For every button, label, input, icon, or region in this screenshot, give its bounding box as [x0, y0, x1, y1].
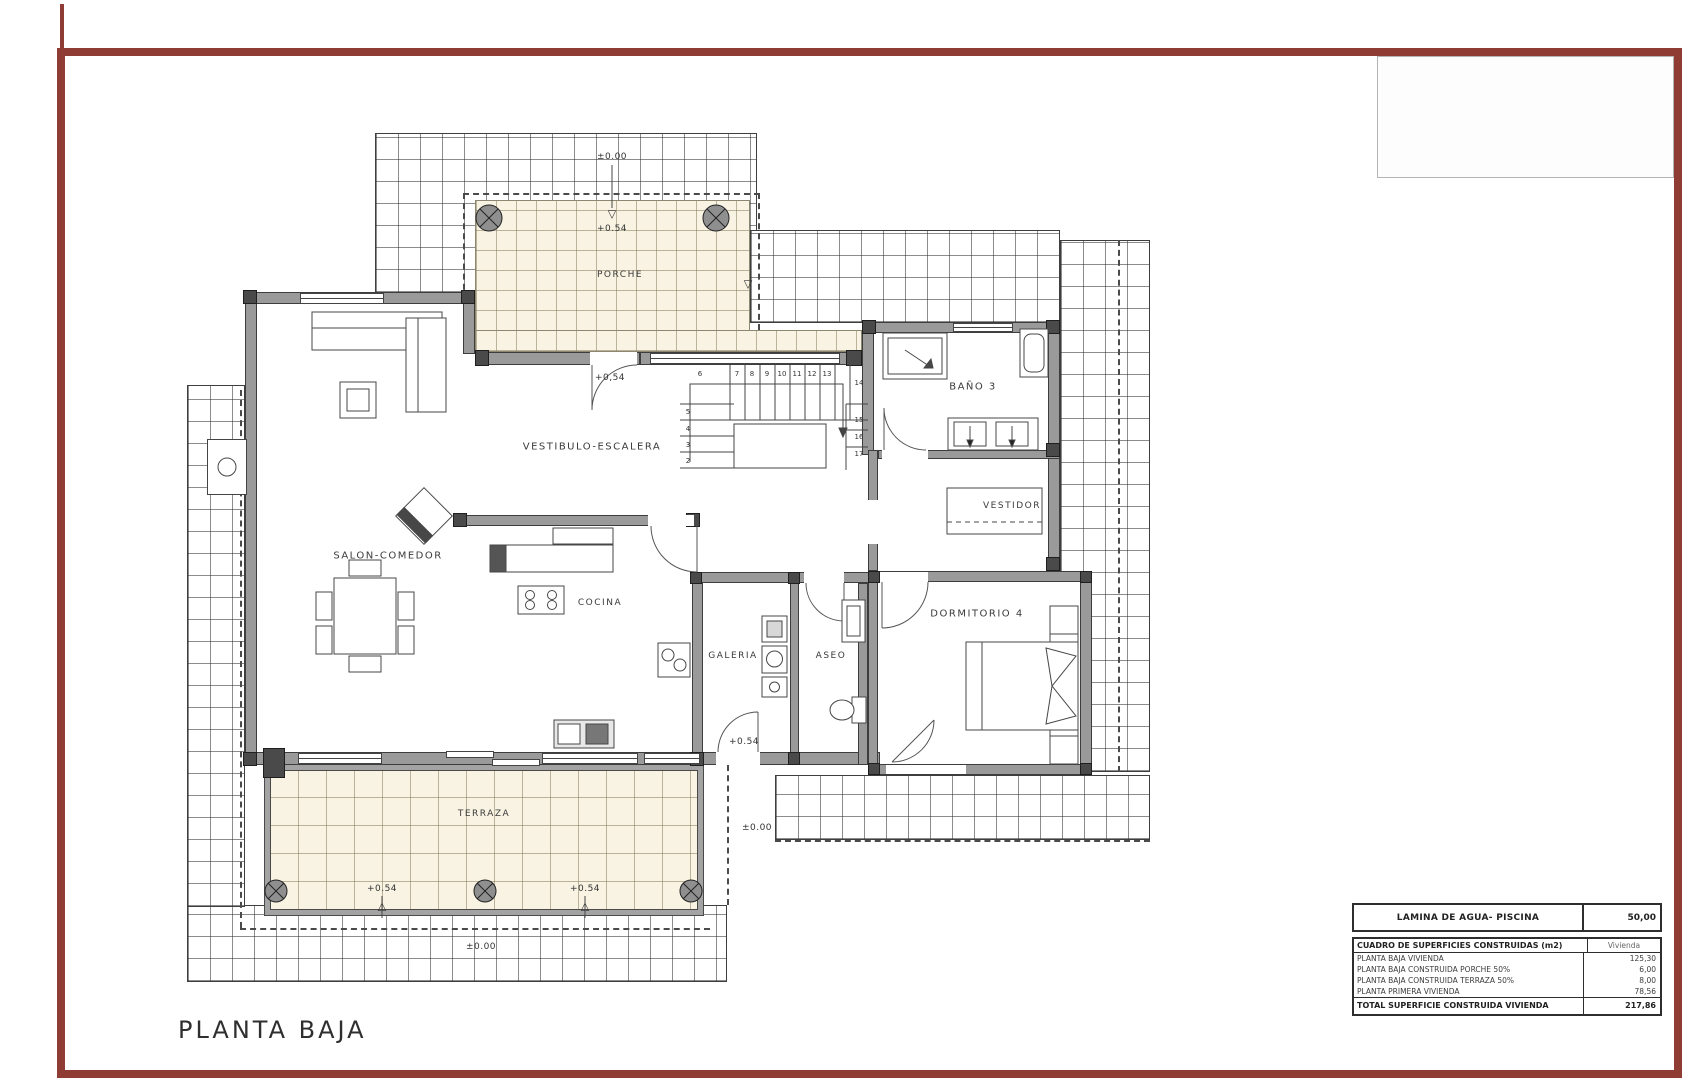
pier-block: [1080, 571, 1092, 583]
step-number: 15: [855, 416, 864, 424]
frame-corner-tick: [60, 4, 64, 50]
door-opening-entrance: [590, 352, 637, 365]
table-cell-value: 8,00: [1583, 975, 1660, 986]
pier-block: [1046, 320, 1060, 334]
step-number: 7: [735, 370, 739, 378]
drawing-title: PLANTA BAJA: [178, 1016, 367, 1044]
level-mark-galeria: +0.54: [729, 737, 759, 747]
room-mid-area: [475, 352, 880, 765]
paving-bottom-right: [775, 775, 1150, 840]
step-number: 9: [765, 370, 769, 378]
step-number: 4: [686, 425, 690, 433]
porch-floor-strip: [475, 330, 862, 352]
wall-dorm-right: [1080, 571, 1092, 775]
title-block-box: [1377, 56, 1674, 178]
step-number: 5: [686, 408, 690, 416]
window-salon-bottom: [298, 753, 382, 764]
wall-galeria-left: [692, 583, 703, 765]
door-opening-dorm-south: [886, 765, 966, 774]
window-cocina-bottom: [542, 753, 638, 764]
level-mark-porch: +0.54: [597, 224, 627, 234]
pier-block: [1080, 763, 1092, 775]
room-label-aseo: ASEO: [816, 651, 847, 661]
window-salon-top: [300, 293, 384, 304]
wall-bano3-left: [862, 322, 874, 455]
pier-block: [243, 290, 257, 304]
drawing-sheet: 2 3 4 5 6 7 8 9 10 11 12 13 14 15 16 17 …: [0, 0, 1700, 1080]
table-total-label: TOTAL SUPERFICIE CONSTRUIDA VIVIENDA: [1354, 998, 1583, 1014]
terrace-floor: [265, 765, 703, 915]
pier-block: [690, 572, 702, 584]
window-bano3: [953, 323, 1013, 332]
table-row: PLANTA BAJA VIVIENDA 125,30: [1354, 953, 1660, 964]
step-number: 3: [686, 441, 690, 449]
pool-area-label: LAMINA DE AGUA- PISCINA: [1354, 913, 1582, 923]
pier-block: [868, 571, 880, 583]
dashed-mid-boundary: [727, 765, 729, 905]
room-label-terraza: TERRAZA: [458, 809, 510, 819]
table-cell-value: 78,56: [1583, 986, 1660, 997]
table-header-label: CUADRO DE SUPERFICIES CONSTRUIDAS (m2): [1354, 939, 1587, 952]
level-mark-bottom: ±0.00: [466, 942, 496, 952]
pier-block: [1046, 557, 1060, 571]
step-number: 11: [793, 370, 802, 378]
pier-block: [453, 513, 467, 527]
room-label-vestibulo: VESTIBULO-ESCALERA: [523, 442, 661, 453]
surfaces-table: LAMINA DE AGUA- PISCINA 50,00 CUADRO DE …: [1352, 903, 1662, 1016]
pier-block: [846, 350, 862, 366]
door-opening-galeria: [716, 752, 760, 765]
sliding-door-leaf: [446, 751, 494, 758]
pool-area-row: LAMINA DE AGUA- PISCINA 50,00: [1352, 903, 1662, 932]
wall-aseo-right: [858, 583, 868, 765]
door-opening-dormitorio: [880, 572, 928, 582]
paving-bottom-band: [187, 905, 727, 982]
pier-block: [862, 320, 876, 334]
table-cell-label: PLANTA BAJA CONSTRUIDA TERRAZA 50%: [1354, 975, 1583, 986]
table-total-value: 217,86: [1583, 998, 1660, 1014]
step-number: 12: [808, 370, 817, 378]
room-label-porche: PORCHE: [597, 270, 643, 280]
level-mark-right: ±0.00: [742, 823, 772, 833]
room-label-salon: SALON-COMEDOR: [333, 551, 442, 562]
table-row: PLANTA BAJA CONSTRUIDA PORCHE 50% 6,00: [1354, 964, 1660, 975]
dashed-bottom-right-boundary: [775, 840, 1150, 842]
pier-block: [461, 290, 475, 304]
wall-galeria-aseo: [790, 583, 799, 765]
wall-service-top: [692, 572, 880, 583]
level-mark-vestibule: +0,54: [595, 373, 625, 383]
table-cell-value: 6,00: [1583, 964, 1660, 975]
frame-bottom: [57, 1070, 1682, 1078]
level-mark-top: ±0.00: [597, 152, 627, 162]
table-row: PLANTA BAJA CONSTRUIDA TERRAZA 50% 8,00: [1354, 975, 1660, 986]
dashed-bottom-boundary: [240, 928, 710, 930]
level-mark-terraza-b: +0.54: [570, 884, 600, 894]
frame-left: [57, 48, 65, 1078]
step-number: 17: [855, 450, 864, 458]
step-number: 10: [778, 370, 787, 378]
pier-block: [1046, 443, 1060, 457]
pier-block: [788, 752, 800, 765]
level-triangle-icon: △: [378, 901, 386, 912]
wall-niche: [207, 439, 247, 495]
step-number: 6: [698, 370, 702, 378]
table-cell-label: PLANTA BAJA CONSTRUIDA PORCHE 50%: [1354, 964, 1583, 975]
step-number: 2: [686, 457, 690, 465]
table-row: PLANTA PRIMERA VIVIENDA 78,56: [1354, 986, 1660, 997]
room-label-vestidor: VESTIDOR: [983, 501, 1041, 511]
room-label-bano3: BAÑO 3: [949, 382, 997, 393]
level-triangle-icon: ▽: [608, 209, 616, 220]
window-vestibule: [650, 353, 840, 364]
dashed-right-boundary: [1118, 240, 1120, 772]
step-number: 8: [750, 370, 754, 378]
pier-block: [788, 572, 800, 584]
pier-block: [475, 350, 489, 366]
room-dormitorio-area: [868, 571, 1092, 775]
wall-dorm-left: [868, 571, 878, 775]
room-label-galeria: GALERIA: [708, 651, 757, 661]
built-surfaces-table: CUADRO DE SUPERFICIES CONSTRUIDAS (m2) V…: [1352, 937, 1662, 1016]
frame-top: [57, 48, 1682, 56]
door-opening-cocina: [648, 515, 694, 526]
room-label-dormitorio4: DORMITORIO 4: [930, 609, 1023, 620]
sliding-door-leaf: [492, 759, 540, 766]
paving-top-right: [750, 230, 1060, 323]
room-label-cocina: COCINA: [578, 598, 622, 608]
table-cell-label: PLANTA PRIMERA VIVIENDA: [1354, 986, 1583, 997]
table-cell-label: PLANTA BAJA VIVIENDA: [1354, 953, 1583, 964]
door-opening-bano3: [882, 450, 928, 459]
frame-right: [1674, 48, 1682, 1078]
table-cell-value: 125,30: [1583, 953, 1660, 964]
step-number: 16: [855, 433, 864, 441]
pier-block: [263, 748, 285, 778]
step-number: 14: [855, 379, 864, 387]
pier-block: [243, 752, 257, 766]
table-header-row: CUADRO DE SUPERFICIES CONSTRUIDAS (m2) V…: [1354, 939, 1660, 953]
level-mark-terraza-a: +0.54: [367, 884, 397, 894]
room-salon-area: [245, 292, 475, 765]
pier-block: [868, 763, 880, 775]
door-opening-vestidor: [868, 500, 878, 544]
step-number: 13: [823, 370, 832, 378]
table-header-value: Vivienda: [1587, 939, 1660, 952]
table-total-row: TOTAL SUPERFICIE CONSTRUIDA VIVIENDA 217…: [1354, 997, 1660, 1014]
door-opening-aseo: [804, 572, 844, 583]
wall-salon-left: [245, 292, 257, 765]
window-galeria-bottom: [644, 753, 700, 764]
level-triangle-icon: △: [581, 901, 589, 912]
level-triangle-icon: ▽: [744, 279, 752, 290]
pool-area-value: 50,00: [1582, 905, 1660, 930]
